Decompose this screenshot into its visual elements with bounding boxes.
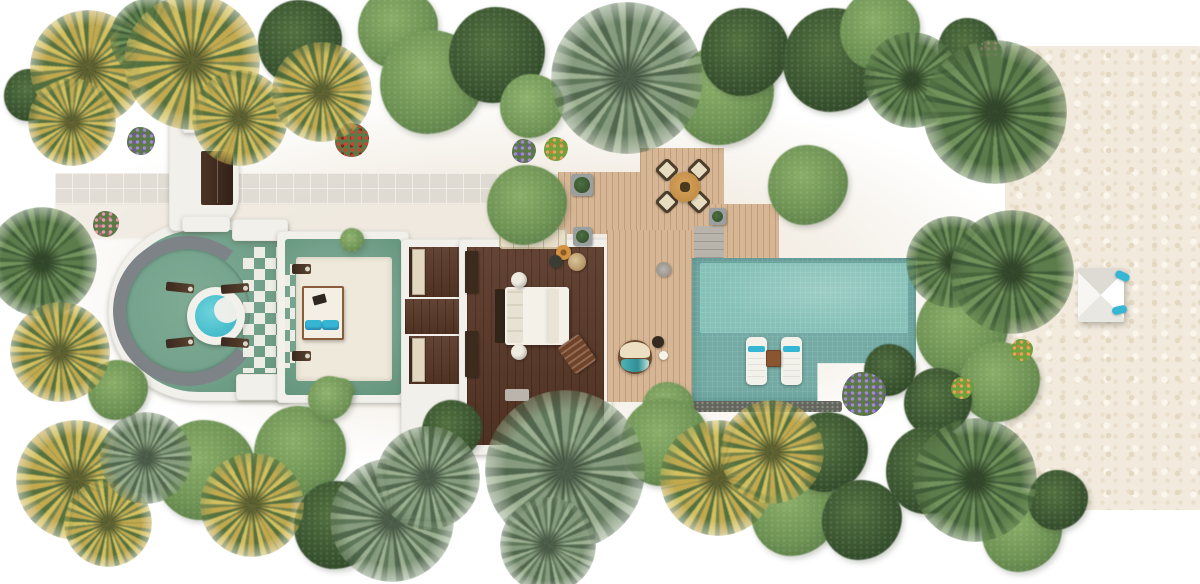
pool-side-table xyxy=(766,350,781,367)
entry-post-bottom xyxy=(182,216,230,232)
pool-water xyxy=(700,263,908,333)
bed1-cushion-left xyxy=(305,320,322,330)
dining-table xyxy=(670,172,700,202)
deck-main xyxy=(607,230,699,402)
pool-lounger-left xyxy=(746,337,767,385)
papasan-side-table xyxy=(652,336,664,348)
papasan-chair xyxy=(618,340,652,374)
deck-planter-2 xyxy=(573,227,592,246)
wardrobe-top xyxy=(409,249,425,295)
tub-bench-bottom-right xyxy=(221,337,250,348)
bedroom1-stool-top xyxy=(292,264,311,274)
pool-lounger-right xyxy=(781,337,802,385)
bed2 xyxy=(505,287,569,345)
bedroom2-console-top xyxy=(465,251,478,293)
bed2-pouf-bottom xyxy=(511,344,527,360)
bed2-headboard xyxy=(495,289,505,343)
pool-steps xyxy=(694,226,724,258)
palm-tree xyxy=(923,40,1067,184)
bedroom2-console-bottom xyxy=(465,331,478,377)
deck-planter-3 xyxy=(709,208,726,225)
bedroom2-pouf-dark xyxy=(549,255,562,268)
bed2-pouf-top xyxy=(511,272,527,288)
deck-stool xyxy=(656,262,671,277)
closet-corridor-floor xyxy=(405,299,465,334)
basket-chair xyxy=(568,253,586,271)
bedroom1-stool-bottom xyxy=(292,351,311,361)
villa-site-plan xyxy=(0,0,1200,584)
tree xyxy=(701,8,789,96)
soaking-tub xyxy=(187,287,245,345)
deck-lamp xyxy=(659,351,668,360)
deck-planter-1 xyxy=(571,174,593,196)
wardrobe-bottom xyxy=(409,338,425,382)
bed1-cushion-right xyxy=(322,320,339,330)
tub-bench-top-right xyxy=(221,283,250,294)
